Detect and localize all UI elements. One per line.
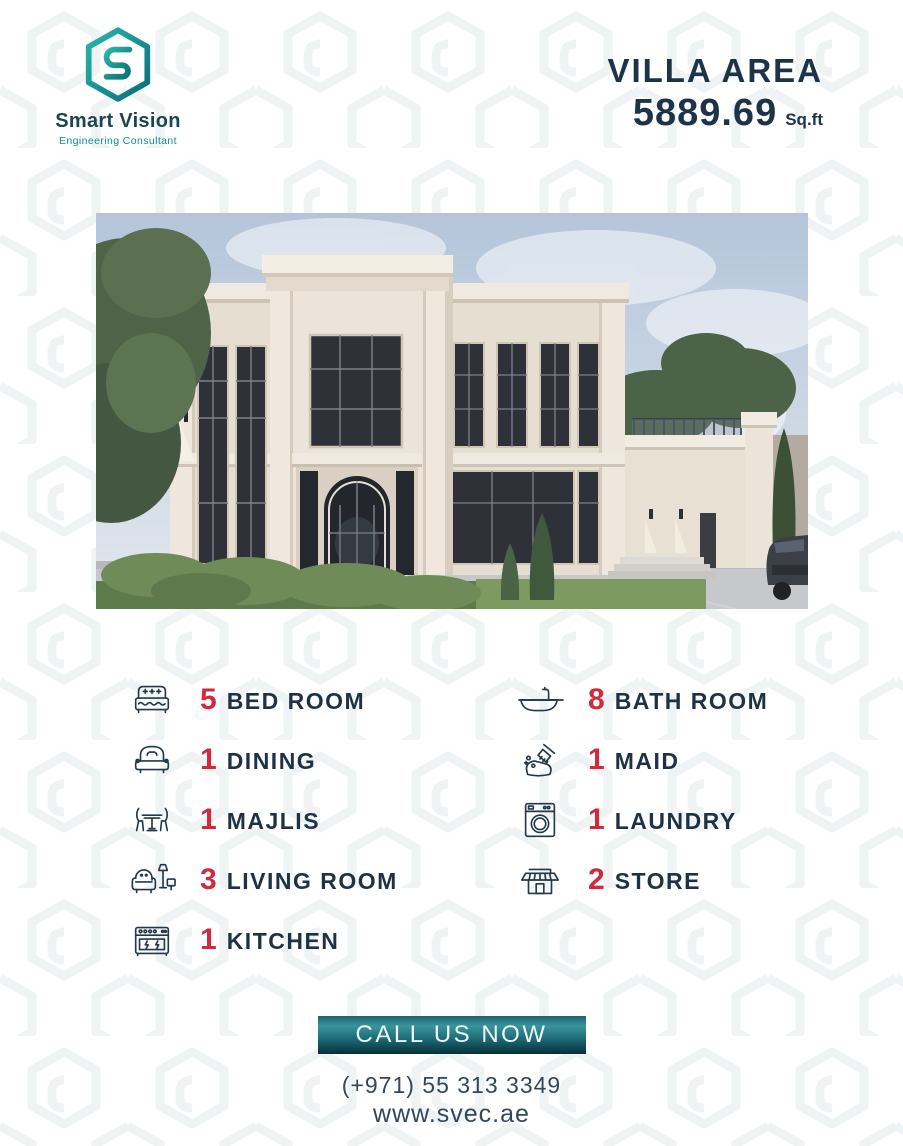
- feature-label: STORE: [615, 868, 701, 893]
- feature-laundry: 1 LAUNDRY: [514, 798, 768, 842]
- sofa-icon: [126, 736, 178, 784]
- feature-count: 5: [200, 685, 217, 715]
- features-column-left: 5 BED ROOM 1 DINING: [126, 678, 398, 962]
- villa-area-value: 5889.69: [633, 92, 777, 135]
- feature-bedroom: 5 BED ROOM: [126, 678, 398, 722]
- feature-store: 2 STORE: [514, 858, 768, 902]
- feature-dining: 1 MAJLIS: [126, 798, 398, 842]
- feature-label: MAID: [615, 748, 680, 773]
- feature-count: 3: [200, 865, 217, 895]
- feature-kitchen: 1 KITCHEN: [126, 918, 398, 962]
- cleaning-brush-icon: [514, 736, 566, 784]
- phone-number[interactable]: (+971) 55 313 3349: [0, 1072, 903, 1099]
- feature-label: LIVING ROOM: [227, 868, 398, 893]
- feature-count: 1: [200, 805, 217, 835]
- washing-machine-icon: [514, 796, 566, 844]
- armchair-lamp-icon: [126, 856, 178, 904]
- stove-icon: [126, 916, 178, 964]
- feature-label: BATH ROOM: [615, 688, 769, 713]
- feature-count: 1: [588, 745, 605, 775]
- feature-count: 1: [200, 745, 217, 775]
- brand-block: Smart Vision Engineering Consultant: [48, 26, 188, 147]
- website-link[interactable]: www.svec.ae: [0, 1100, 903, 1129]
- hexagon-s-logo-icon: [82, 26, 154, 106]
- villa-area-block: VILLA AREA 5889.69 Sq.ft: [607, 52, 823, 135]
- feature-count: 2: [588, 865, 605, 895]
- features-column-right: 8 BATH ROOM 1 MAID: [514, 678, 768, 902]
- bathtub-icon: [514, 676, 566, 724]
- flyer-page: Smart Vision Engineering Consultant VILL…: [0, 0, 903, 1146]
- villa-photo: [96, 213, 808, 609]
- call-us-now-button[interactable]: CALL US NOW: [318, 1016, 586, 1054]
- feature-label: KITCHEN: [227, 928, 340, 953]
- feature-count: 1: [200, 925, 217, 955]
- feature-count: 1: [588, 805, 605, 835]
- villa-area-label: VILLA AREA: [607, 52, 823, 90]
- bed-icon: [126, 676, 178, 724]
- shop-icon: [514, 856, 566, 904]
- feature-maid: 1 MAID: [514, 738, 768, 782]
- feature-label: MAJLIS: [227, 808, 320, 833]
- dining-table-icon: [126, 796, 178, 844]
- feature-label: DINING: [227, 748, 317, 773]
- brand-name: Smart Vision: [48, 110, 188, 133]
- villa-area-unit: Sq.ft: [785, 110, 823, 130]
- brand-tagline: Engineering Consultant: [48, 135, 188, 147]
- feature-living-room: 3 LIVING ROOM: [126, 858, 398, 902]
- feature-bathroom: 8 BATH ROOM: [514, 678, 768, 722]
- feature-majlis: 1 DINING: [126, 738, 398, 782]
- feature-count: 8: [588, 685, 605, 715]
- feature-label: BED ROOM: [227, 688, 366, 713]
- feature-label: LAUNDRY: [615, 808, 737, 833]
